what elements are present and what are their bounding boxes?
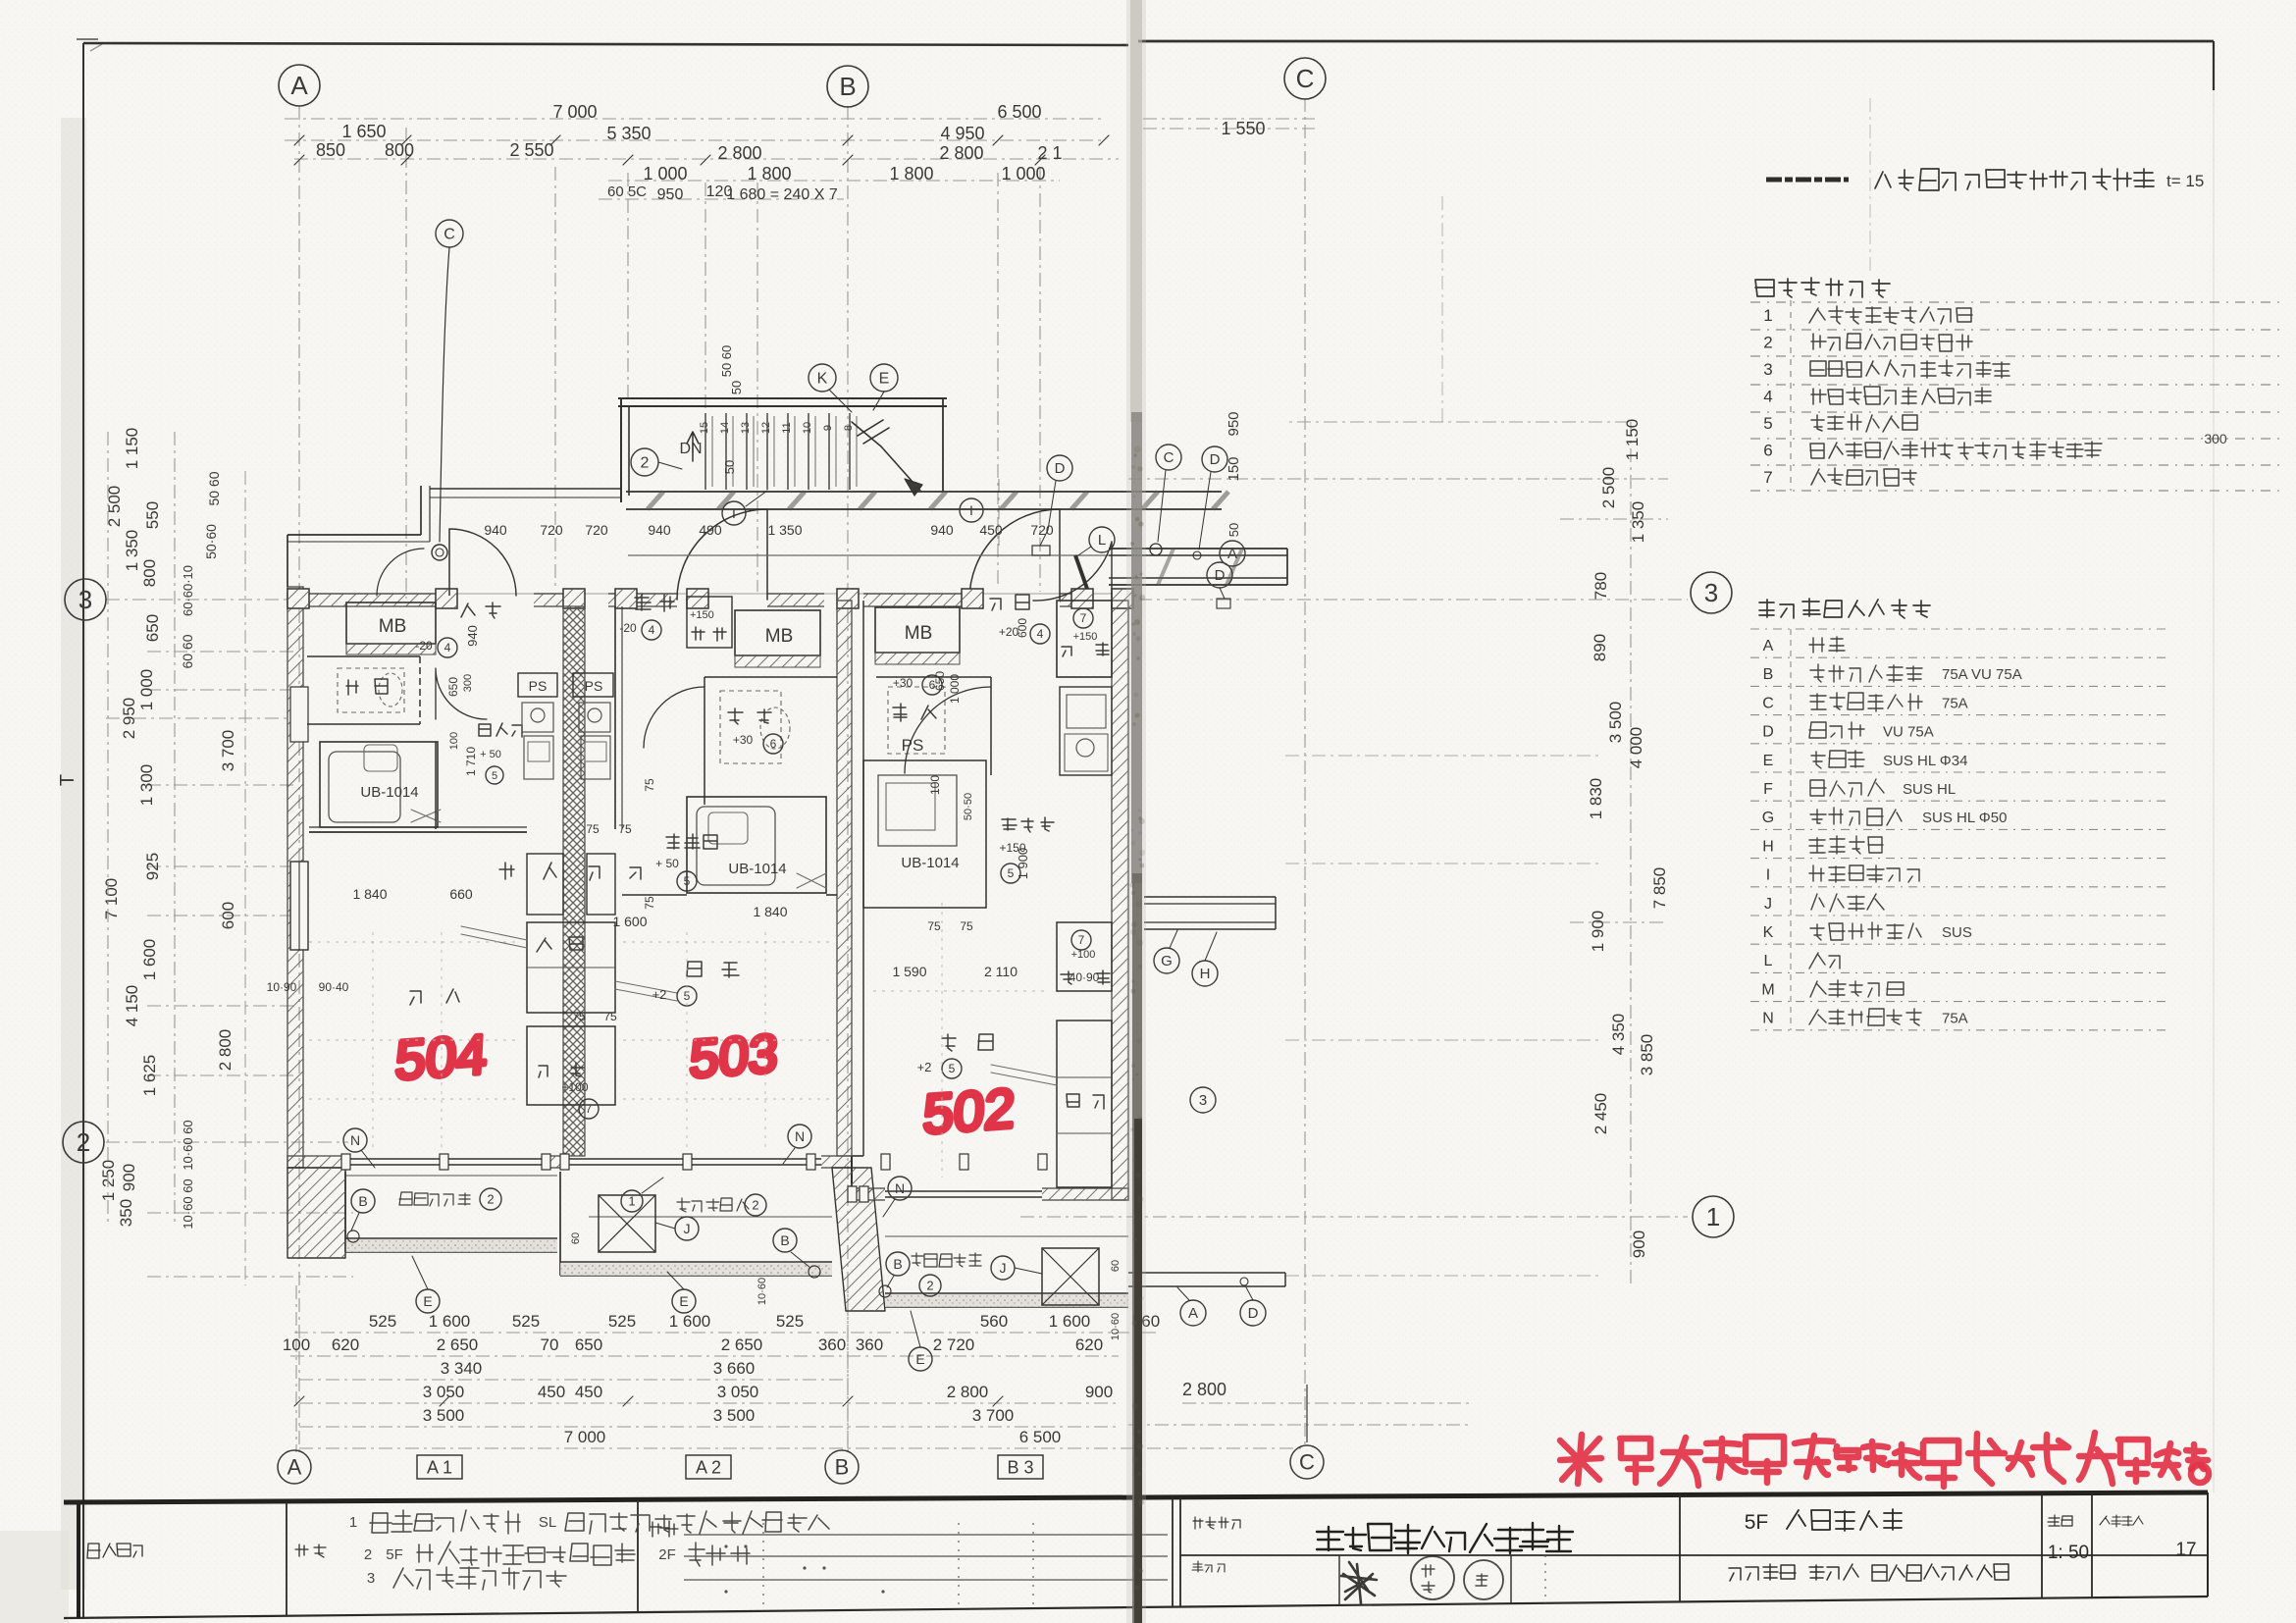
svg-text:450: 450	[538, 1383, 565, 1401]
svg-text:MB: MB	[765, 626, 794, 647]
svg-text:6: 6	[1763, 442, 1772, 460]
svg-text:H: H	[1200, 966, 1211, 982]
svg-text:C: C	[1762, 695, 1774, 711]
svg-text:1 000: 1 000	[1001, 164, 1045, 183]
svg-text:+ 50: + 50	[655, 857, 679, 870]
svg-text:75: 75	[572, 1010, 586, 1023]
svg-text:350: 350	[117, 1199, 135, 1227]
svg-text:C: C	[1299, 1450, 1315, 1475]
svg-text:2 650: 2 650	[721, 1335, 763, 1354]
svg-text:2 650: 2 650	[437, 1335, 479, 1354]
svg-text:2 800: 2 800	[1182, 1380, 1226, 1399]
svg-text:550: 550	[143, 501, 162, 529]
svg-text:90·40: 90·40	[319, 980, 349, 994]
svg-text:890: 890	[1591, 634, 1609, 661]
svg-text:1 800: 1 800	[747, 164, 791, 183]
svg-text:4: 4	[444, 641, 451, 654]
svg-text:3: 3	[1704, 578, 1718, 607]
svg-text:MB: MB	[905, 623, 933, 644]
svg-text:3 500: 3 500	[713, 1406, 756, 1425]
svg-text:E: E	[679, 1293, 688, 1309]
svg-text:6: 6	[770, 737, 777, 751]
svg-text:UB-1014: UB-1014	[360, 784, 418, 801]
svg-text:B: B	[839, 72, 856, 101]
svg-text:2: 2	[1763, 334, 1772, 352]
svg-text:1 000: 1 000	[137, 669, 156, 711]
svg-text:1 600: 1 600	[1049, 1312, 1091, 1331]
svg-text:75: 75	[960, 919, 973, 933]
svg-text:L: L	[1098, 532, 1106, 549]
svg-text:75A: 75A	[1942, 1011, 1968, 1027]
svg-text:t= 15: t= 15	[2166, 172, 2204, 190]
svg-text:650: 650	[575, 1335, 602, 1354]
svg-text:2: 2	[641, 455, 650, 472]
svg-text:650: 650	[933, 671, 947, 691]
svg-text:UB-1014: UB-1014	[728, 861, 786, 877]
svg-text:50·60: 50·60	[203, 524, 219, 559]
svg-text:3 660: 3 660	[713, 1359, 756, 1378]
svg-text:75A VU 75A: 75A VU 75A	[1942, 666, 2022, 683]
svg-text:900: 900	[1630, 1230, 1648, 1258]
svg-text:560: 560	[980, 1312, 1008, 1331]
svg-text:720: 720	[540, 522, 563, 538]
svg-text:3: 3	[78, 585, 92, 614]
svg-text:1 550: 1 550	[1221, 119, 1265, 138]
svg-text:5 350: 5 350	[606, 124, 651, 143]
svg-text:J: J	[1000, 1260, 1007, 1276]
svg-text:525: 525	[608, 1312, 636, 1331]
svg-text:780: 780	[1592, 572, 1610, 600]
svg-text:4: 4	[1763, 388, 1772, 406]
svg-text:C: C	[444, 227, 455, 243]
svg-text:1 150: 1 150	[123, 428, 141, 470]
svg-text:75: 75	[586, 822, 600, 836]
svg-text:13: 13	[740, 422, 752, 434]
svg-text:G: G	[1762, 810, 1774, 826]
svg-text:2 450: 2 450	[1592, 1093, 1610, 1135]
svg-text:525: 525	[776, 1312, 804, 1331]
svg-text:PS: PS	[585, 678, 603, 694]
svg-text:K: K	[1763, 924, 1774, 941]
svg-text:SUS: SUS	[1942, 924, 1972, 941]
svg-text:620: 620	[1075, 1335, 1103, 1354]
svg-text:1: 1	[1706, 1202, 1720, 1231]
svg-text:1 900: 1 900	[1016, 848, 1030, 880]
svg-text:+100: +100	[1071, 949, 1096, 961]
svg-text:-20: -20	[415, 639, 433, 653]
svg-text:D: D	[1055, 460, 1066, 477]
svg-text:650: 650	[143, 614, 162, 642]
svg-text:940: 940	[930, 522, 954, 538]
svg-text:B: B	[358, 1193, 367, 1209]
svg-text:50: 50	[722, 460, 737, 474]
svg-text:2 500: 2 500	[1599, 467, 1618, 509]
svg-text:I: I	[1766, 867, 1770, 884]
svg-text:50·50: 50·50	[963, 793, 974, 820]
svg-text:100: 100	[928, 775, 942, 795]
svg-text:VU 75A: VU 75A	[1883, 724, 1934, 741]
svg-text:5: 5	[1008, 866, 1015, 880]
svg-text:T: T	[57, 774, 78, 786]
svg-text:4 000: 4 000	[1627, 727, 1645, 769]
svg-text:3 700: 3 700	[219, 730, 237, 772]
svg-text:3 500: 3 500	[423, 1406, 465, 1425]
svg-text:SUS HL Φ50: SUS HL Φ50	[1922, 810, 2007, 826]
svg-text:2 550: 2 550	[509, 140, 553, 160]
svg-text:PS: PS	[529, 678, 548, 694]
svg-text:60·60·10: 60·60·10	[181, 565, 195, 616]
svg-text:K: K	[817, 371, 828, 388]
svg-text:A: A	[290, 71, 308, 100]
svg-text:7 100: 7 100	[102, 878, 121, 920]
svg-text:10·60: 10·60	[1110, 1313, 1122, 1340]
svg-text:7: 7	[1078, 933, 1085, 947]
svg-text:+2: +2	[652, 987, 667, 1002]
svg-text:D: D	[1210, 451, 1221, 468]
svg-text:6 500: 6 500	[997, 102, 1041, 122]
svg-text:1 900: 1 900	[1589, 911, 1607, 953]
svg-text:SUS HL: SUS HL	[1903, 781, 1956, 798]
svg-text:I: I	[969, 502, 973, 518]
svg-text:15: 15	[699, 422, 710, 434]
svg-text:1 600: 1 600	[612, 914, 647, 929]
svg-text:12: 12	[760, 422, 772, 434]
svg-text:450: 450	[979, 522, 1003, 538]
svg-text:1 000: 1 000	[948, 674, 962, 704]
svg-text:1: 1	[349, 1514, 357, 1531]
svg-text:DN: DN	[679, 441, 702, 457]
svg-text:5: 5	[1763, 414, 1772, 433]
svg-text:L: L	[1764, 953, 1773, 969]
svg-text:1 350: 1 350	[767, 522, 802, 538]
svg-text:10·60 60: 10·60 60	[181, 1120, 195, 1170]
svg-text:60: 60	[1110, 1260, 1122, 1272]
svg-text:75: 75	[927, 919, 941, 933]
svg-text:5F: 5F	[1745, 1511, 1769, 1534]
svg-text:3 050: 3 050	[717, 1383, 759, 1401]
svg-text:E: E	[879, 371, 890, 388]
svg-text:A 1: A 1	[427, 1457, 452, 1477]
svg-text:J: J	[684, 1221, 691, 1236]
svg-text:600: 600	[219, 902, 237, 929]
svg-text:75: 75	[643, 896, 656, 910]
svg-text:E: E	[423, 1293, 432, 1309]
svg-text:M: M	[1761, 981, 1774, 998]
svg-text:F: F	[1763, 781, 1773, 798]
svg-text:1 840: 1 840	[753, 904, 787, 919]
svg-text:D: D	[1215, 567, 1226, 584]
svg-text:360: 360	[818, 1335, 846, 1354]
svg-text:450: 450	[575, 1383, 602, 1401]
svg-text:1: 1	[1763, 306, 1772, 325]
svg-text:360: 360	[856, 1335, 883, 1354]
svg-text:H: H	[1762, 838, 1774, 855]
svg-text:3 050: 3 050	[423, 1383, 465, 1401]
svg-text:1 830: 1 830	[1587, 778, 1605, 820]
svg-text:2 800: 2 800	[717, 143, 761, 163]
svg-text:2: 2	[77, 1127, 90, 1157]
svg-text:17: 17	[2175, 1540, 2196, 1560]
svg-text:A 2: A 2	[696, 1457, 721, 1477]
svg-text:720: 720	[1030, 522, 1054, 538]
svg-text:2: 2	[364, 1546, 372, 1563]
svg-text:75: 75	[643, 778, 656, 792]
svg-text:7: 7	[586, 1102, 593, 1116]
svg-text:1 590: 1 590	[892, 964, 926, 979]
svg-text:650: 650	[446, 677, 460, 697]
svg-text:2 110: 2 110	[984, 964, 1018, 979]
svg-text:490: 490	[699, 522, 722, 538]
svg-text:60: 60	[570, 1232, 582, 1244]
svg-text:4: 4	[649, 623, 655, 637]
svg-text:1 350: 1 350	[1629, 501, 1647, 544]
svg-text:1 000: 1 000	[643, 164, 687, 183]
svg-text:3 340: 3 340	[441, 1359, 483, 1378]
svg-text:4 950: 4 950	[940, 124, 984, 143]
svg-text:D: D	[1248, 1305, 1259, 1322]
svg-text:950: 950	[1226, 411, 1242, 436]
svg-text:3 850: 3 850	[1638, 1034, 1656, 1076]
svg-text:4 150: 4 150	[123, 985, 141, 1027]
svg-text:50: 50	[729, 381, 744, 394]
svg-text:E: E	[915, 1351, 924, 1367]
svg-text:6 500: 6 500	[1019, 1428, 1062, 1446]
svg-text:2: 2	[752, 1198, 758, 1213]
svg-text:1 600: 1 600	[140, 939, 159, 981]
svg-text:5F: 5F	[386, 1546, 403, 1563]
svg-text:2: 2	[926, 1279, 933, 1293]
svg-text:MB: MB	[379, 616, 407, 637]
svg-text:10·60 60: 10·60 60	[181, 1178, 195, 1229]
svg-text:940: 940	[465, 625, 480, 647]
svg-text:900: 900	[1085, 1383, 1113, 1401]
svg-text:J: J	[1764, 896, 1772, 913]
svg-text:2 950: 2 950	[120, 698, 138, 740]
svg-text:800: 800	[140, 559, 159, 587]
svg-text:2 720: 2 720	[933, 1335, 975, 1354]
svg-text:1: 50: 1: 50	[2048, 1543, 2089, 1563]
svg-text:8: 8	[843, 425, 855, 431]
svg-text:1 710: 1 710	[464, 747, 478, 776]
svg-text:3 700: 3 700	[972, 1406, 1015, 1425]
svg-text:11: 11	[781, 422, 793, 433]
svg-text:7 850: 7 850	[1650, 867, 1669, 910]
svg-text:40·90: 40·90	[1070, 970, 1100, 984]
svg-text:2: 2	[487, 1192, 494, 1207]
svg-text:940: 940	[648, 522, 671, 538]
svg-text:N: N	[895, 1180, 905, 1196]
svg-text:+30: +30	[893, 676, 913, 690]
svg-text:5: 5	[492, 770, 497, 782]
svg-text:1 625: 1 625	[140, 1055, 159, 1097]
svg-text:D: D	[1762, 724, 1774, 741]
svg-text:3 500: 3 500	[1606, 702, 1625, 744]
svg-text:2 800: 2 800	[947, 1383, 989, 1401]
svg-text:7: 7	[1763, 468, 1772, 487]
svg-text:E: E	[1763, 753, 1774, 769]
svg-text:5: 5	[949, 1062, 956, 1075]
svg-text:1 600: 1 600	[429, 1312, 471, 1331]
svg-text:2 800: 2 800	[939, 143, 983, 163]
svg-text:75A: 75A	[1942, 695, 1968, 711]
svg-text:B: B	[893, 1256, 902, 1272]
svg-text:3: 3	[1199, 1092, 1207, 1109]
svg-text:14: 14	[719, 422, 731, 434]
svg-text:PS: PS	[902, 736, 924, 755]
svg-text:SUS HL Φ34: SUS HL Φ34	[1883, 753, 1967, 769]
svg-text:+30: +30	[733, 733, 754, 747]
svg-text:10·60: 10·60	[757, 1278, 768, 1305]
svg-text:300: 300	[462, 674, 474, 692]
svg-text:UB-1014: UB-1014	[901, 855, 959, 871]
svg-text:50 60: 50 60	[206, 471, 222, 505]
svg-text:1 600: 1 600	[669, 1312, 711, 1331]
svg-text:I: I	[732, 505, 736, 521]
svg-text:N: N	[795, 1128, 805, 1144]
svg-text:925: 925	[143, 853, 162, 880]
svg-text:7: 7	[1080, 611, 1087, 625]
svg-text:660: 660	[449, 886, 473, 902]
svg-text:A: A	[1227, 546, 1237, 562]
svg-text:+150: +150	[690, 609, 714, 621]
svg-text:75: 75	[603, 1010, 617, 1023]
svg-text:502: 502	[921, 1076, 1017, 1145]
svg-text:75: 75	[618, 822, 632, 836]
svg-text:1 350: 1 350	[123, 530, 141, 572]
svg-text:4 350: 4 350	[1609, 1014, 1628, 1056]
svg-text:720: 720	[585, 522, 608, 538]
svg-text:B: B	[835, 1455, 850, 1480]
svg-text:7 000: 7 000	[564, 1428, 606, 1446]
svg-text:1 150: 1 150	[1623, 419, 1642, 461]
svg-text:100: 100	[448, 732, 460, 750]
svg-text:1: 1	[628, 1194, 635, 1209]
svg-text:4: 4	[1037, 627, 1044, 641]
svg-text:60 60: 60 60	[180, 634, 195, 668]
svg-text:10·90: 10·90	[267, 980, 297, 994]
svg-text:+ 50: + 50	[480, 749, 501, 760]
svg-text:1 840: 1 840	[352, 886, 387, 902]
svg-text:5: 5	[684, 874, 691, 888]
svg-text:G: G	[1161, 953, 1173, 969]
svg-text:2 800: 2 800	[216, 1029, 235, 1072]
svg-text:+2: +2	[917, 1060, 932, 1074]
svg-text:A: A	[1763, 638, 1774, 654]
svg-text:2F: 2F	[658, 1546, 676, 1563]
svg-text:9: 9	[822, 425, 834, 431]
svg-text:A: A	[287, 1455, 302, 1480]
svg-text:3: 3	[367, 1570, 375, 1587]
svg-text:50 60: 50 60	[719, 345, 734, 378]
svg-text:525: 525	[369, 1312, 396, 1331]
svg-text:N: N	[1762, 1011, 1774, 1027]
svg-text:950: 950	[657, 186, 684, 203]
svg-text:B: B	[780, 1232, 789, 1248]
svg-text:600: 600	[1016, 618, 1029, 638]
svg-text:50: 50	[1226, 523, 1241, 537]
svg-text:850: 850	[316, 140, 345, 160]
svg-text:SL: SL	[539, 1514, 556, 1531]
svg-text:900: 900	[120, 1164, 138, 1191]
svg-text:940: 940	[484, 522, 507, 538]
svg-text:A: A	[1188, 1305, 1198, 1322]
svg-text:N: N	[350, 1132, 360, 1148]
svg-text:10: 10	[802, 422, 813, 434]
svg-text:100: 100	[283, 1335, 310, 1354]
svg-text:60 5C: 60 5C	[607, 183, 647, 200]
svg-text:2 1: 2 1	[1037, 143, 1062, 163]
svg-text:1 300: 1 300	[137, 764, 156, 807]
svg-text:70: 70	[541, 1335, 559, 1354]
svg-text:7 000: 7 000	[552, 102, 597, 122]
svg-text:1 800: 1 800	[889, 164, 933, 183]
svg-text:B 3: B 3	[1007, 1457, 1033, 1477]
svg-text:1 650: 1 650	[341, 122, 386, 141]
svg-text:620: 620	[332, 1335, 359, 1354]
svg-text:1 680 = 240 X 7: 1 680 = 240 X 7	[726, 186, 838, 203]
svg-text:B: B	[1763, 666, 1774, 683]
svg-text:+150: +150	[1073, 631, 1098, 643]
svg-text:C: C	[1296, 64, 1315, 93]
svg-text:+100: +100	[561, 1080, 588, 1094]
svg-text:300: 300	[2204, 431, 2227, 446]
svg-text:525: 525	[512, 1312, 540, 1331]
svg-text:3: 3	[1763, 360, 1772, 379]
svg-text:C: C	[1164, 449, 1174, 466]
